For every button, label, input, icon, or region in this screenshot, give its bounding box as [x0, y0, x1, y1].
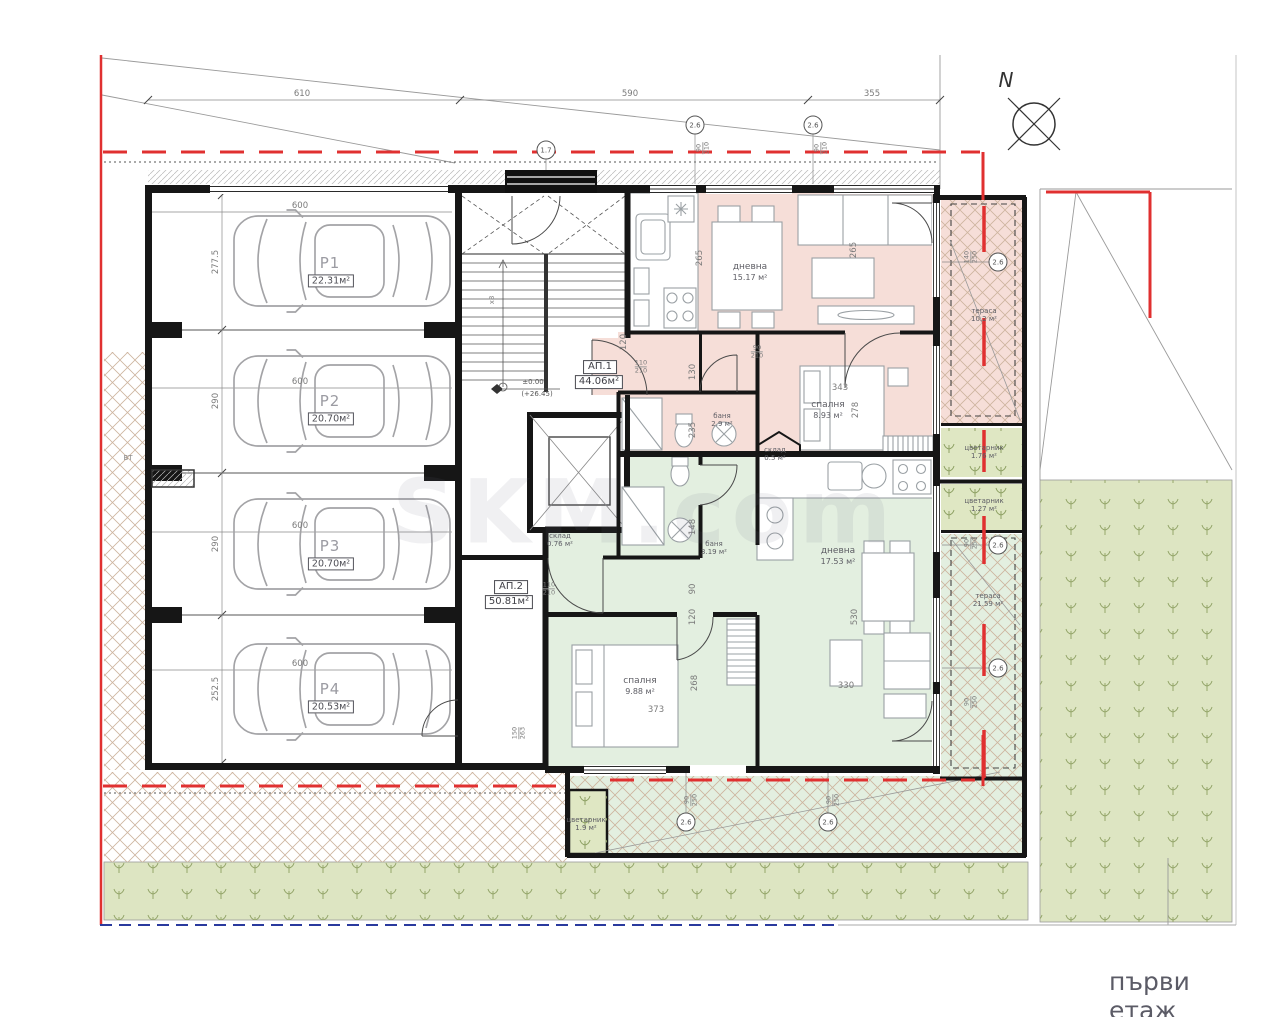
dim-label: 610 — [294, 89, 310, 99]
door-size-label: 110210 — [543, 581, 555, 596]
dim-label: 373 — [648, 705, 664, 715]
dim-label: 590 — [622, 89, 638, 99]
window-marker: 2.6 — [804, 116, 823, 135]
window-size-label: 90210 — [813, 142, 828, 154]
dim-label: 530 — [850, 609, 860, 625]
watermark: SKM.com — [392, 461, 898, 564]
apartment-area: 44.06м² — [575, 375, 623, 389]
parking-id: P3 — [320, 538, 341, 556]
window-marker: 2.6 — [989, 536, 1008, 555]
dim-label: 355 — [864, 89, 880, 99]
dim-label: 290 — [211, 393, 221, 409]
parking-area: 20.53м² — [308, 700, 354, 713]
elevation-value: ±0.00 — [522, 378, 543, 386]
dim-label: 120 — [688, 609, 698, 625]
window-size-label: 90250 — [825, 794, 840, 806]
dim-label: 277.5 — [211, 250, 221, 274]
dim-label: 265 — [849, 242, 859, 258]
dim-label: 268 — [690, 675, 700, 691]
dim-label: 278 — [851, 402, 861, 418]
parking-id: P2 — [320, 393, 341, 411]
room-label: баня 2.9 м² — [711, 412, 732, 429]
dim-label: 290 — [211, 536, 221, 552]
dim-label: 600 — [292, 201, 308, 211]
window-size-label: 90210 — [695, 142, 710, 154]
dim-label: 90 — [688, 584, 698, 595]
dim-label: 600 — [292, 521, 308, 531]
north-letter: N — [999, 68, 1014, 92]
room-label: спалня 9.88 м² — [623, 676, 656, 696]
stairs-count-label: x8 — [488, 296, 496, 305]
window-size-label: 90250 — [963, 537, 978, 549]
room-label: дневна 15.17 м² — [733, 262, 768, 282]
floor-plan-canvas: 610 590 355 P1 22.31м² 600 277.5 P2 20.7… — [0, 0, 1280, 1017]
window-size-label: 140250 — [963, 251, 978, 263]
apartment-area: 50.81м² — [485, 595, 533, 609]
window-marker: 2.6 — [989, 659, 1008, 678]
page-title: първи етаж — [1109, 967, 1223, 1017]
dim-label: 120 — [619, 334, 629, 350]
dim-label: 130 — [688, 364, 698, 380]
room-label: цветарник 1.27 м² — [964, 497, 1003, 514]
north-arrow-icon — [1008, 98, 1060, 150]
window-marker: 2.6 — [677, 813, 696, 832]
dim-label: 600 — [292, 659, 308, 669]
door-size-label: 150263 — [511, 727, 526, 739]
window-marker: 1.7 — [537, 141, 556, 160]
dim-label: 235 — [688, 422, 698, 438]
door-size-label: 90210 — [751, 344, 763, 359]
window-size-label: 90250 — [683, 794, 698, 806]
parking-area: 20.70м² — [308, 412, 354, 425]
door-size-label: 110210 — [635, 359, 647, 374]
room-label: цветарник 1.76 м² — [964, 444, 1003, 461]
dim-label: 330 — [838, 681, 854, 691]
bt-label: ВТ — [123, 454, 132, 462]
room-label: цветарник 1.9 м² — [566, 816, 605, 833]
room-label: тераса 21.59 м² — [973, 592, 1003, 609]
parking-area: 20.70м² — [308, 557, 354, 570]
dim-label: 265 — [695, 250, 705, 266]
elevation-value: (+26.45) — [521, 390, 552, 398]
dim-label: 252.5 — [211, 677, 221, 701]
apartment-id: АП.2 — [494, 580, 528, 594]
apartment-id: АП.1 — [583, 360, 617, 374]
window-marker: 2.6 — [819, 813, 838, 832]
parking-id: P4 — [320, 681, 341, 699]
parking-area: 22.31м² — [308, 274, 354, 287]
dim-label: 343 — [832, 383, 848, 393]
window-marker: 2.6 — [989, 253, 1008, 272]
window-marker: 2.6 — [686, 116, 705, 135]
parking-id: P1 — [320, 255, 341, 273]
room-label: спалня 8.93 м² — [811, 400, 844, 420]
window-size-label: 90250 — [963, 696, 978, 708]
dim-label: 600 — [292, 377, 308, 387]
room-label: тераса 10.2 м² — [971, 307, 997, 324]
